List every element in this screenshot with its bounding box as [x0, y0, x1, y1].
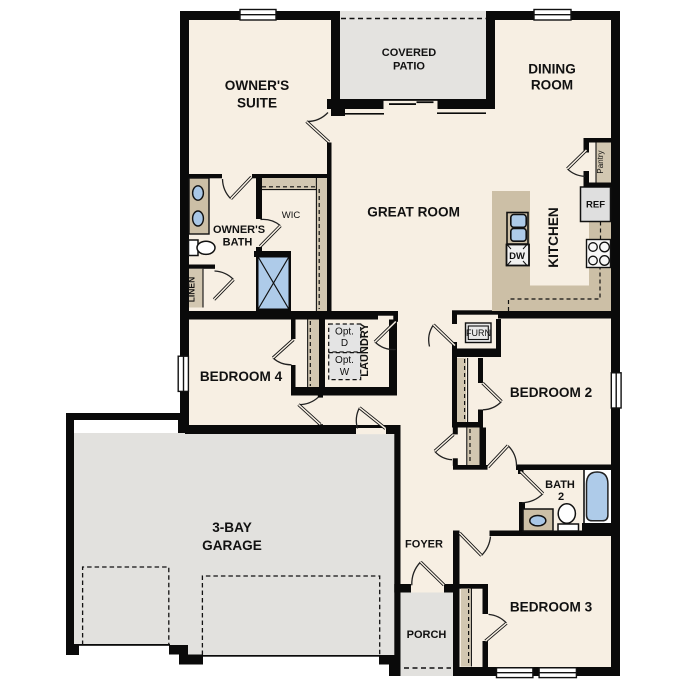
svg-text:BEDROOM 3: BEDROOM 3 — [510, 600, 593, 615]
svg-text:PATIO: PATIO — [393, 60, 425, 72]
svg-text:ROOM: ROOM — [531, 78, 573, 93]
svg-text:WIC: WIC — [282, 210, 301, 221]
svg-text:FURN: FURN — [466, 328, 491, 338]
svg-text:Opt.: Opt. — [335, 326, 354, 337]
svg-text:OWNER'S: OWNER'S — [225, 78, 289, 93]
svg-text:BATH: BATH — [545, 479, 575, 491]
svg-text:FOYER: FOYER — [405, 539, 443, 551]
svg-text:COVERED: COVERED — [382, 47, 436, 59]
svg-text:2: 2 — [558, 491, 564, 503]
svg-text:REF: REF — [586, 200, 605, 211]
svg-text:GREAT ROOM: GREAT ROOM — [367, 204, 460, 219]
svg-text:Opt.: Opt. — [335, 355, 354, 366]
svg-text:W: W — [340, 367, 350, 378]
svg-text:DINING: DINING — [528, 62, 576, 77]
svg-text:BATH: BATH — [223, 237, 253, 249]
svg-text:LAUNDRY: LAUNDRY — [359, 323, 371, 377]
svg-text:DW: DW — [509, 251, 525, 262]
svg-text:3-BAY: 3-BAY — [212, 520, 252, 535]
svg-text:PORCH: PORCH — [407, 629, 447, 641]
svg-text:BEDROOM 4: BEDROOM 4 — [200, 369, 283, 384]
svg-text:D: D — [341, 338, 348, 349]
svg-text:Pantry: Pantry — [596, 150, 605, 173]
svg-text:LINEN: LINEN — [187, 277, 197, 303]
svg-text:SUITE: SUITE — [237, 95, 277, 110]
svg-text:GARAGE: GARAGE — [202, 538, 262, 553]
svg-text:BEDROOM 2: BEDROOM 2 — [510, 385, 593, 400]
svg-text:KITCHEN: KITCHEN — [546, 207, 561, 267]
svg-text:OWNER'S: OWNER'S — [213, 224, 265, 236]
